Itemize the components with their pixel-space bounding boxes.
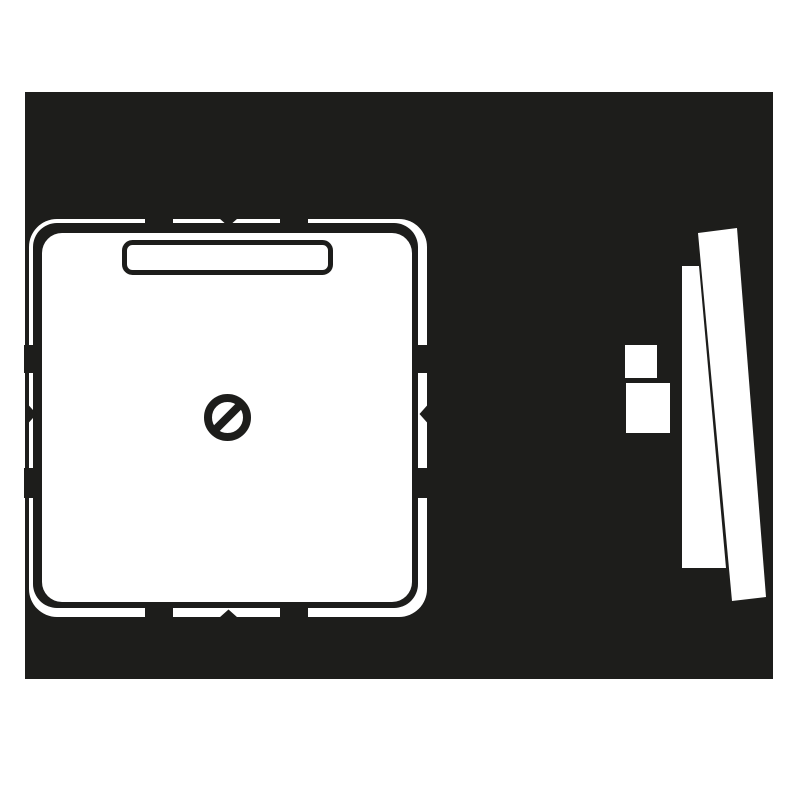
label-field-window xyxy=(125,243,331,273)
notch-bottom-right xyxy=(280,600,308,624)
claw-block-small xyxy=(625,345,657,378)
front-view xyxy=(24,210,432,624)
centre-screw xyxy=(208,398,247,437)
product-drawing xyxy=(0,0,800,800)
notch-right-upper xyxy=(412,345,432,373)
notch-left-upper xyxy=(24,345,44,373)
notch-top-left xyxy=(145,210,173,234)
notch-bottom-left xyxy=(145,600,173,624)
notch-right-lower xyxy=(412,468,432,498)
notch-top-right xyxy=(280,210,308,234)
drawing-stage xyxy=(0,0,800,800)
claw-block-large xyxy=(626,383,670,433)
notch-left-lower xyxy=(24,468,44,498)
